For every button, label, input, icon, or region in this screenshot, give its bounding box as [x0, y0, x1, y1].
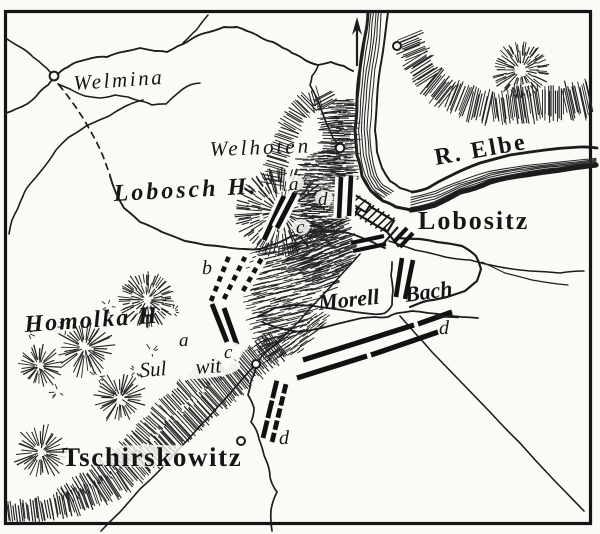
svg-text:Tschirskowitz: Tschirskowitz	[62, 442, 242, 472]
svg-text:d: d	[318, 189, 328, 210]
svg-text:Sul: Sul	[139, 356, 168, 382]
svg-text:a: a	[179, 330, 189, 351]
svg-text:a: a	[289, 174, 299, 195]
svg-text:d: d	[279, 427, 290, 449]
svg-text:d: d	[439, 317, 450, 339]
svg-text:c: c	[224, 342, 233, 363]
svg-text:Lobositz: Lobositz	[418, 206, 529, 235]
svg-text:Welhoten: Welhoten	[209, 133, 311, 161]
svg-text:c: c	[296, 217, 305, 238]
svg-text:wit: wit	[195, 353, 223, 379]
svg-text:b: b	[202, 257, 212, 279]
